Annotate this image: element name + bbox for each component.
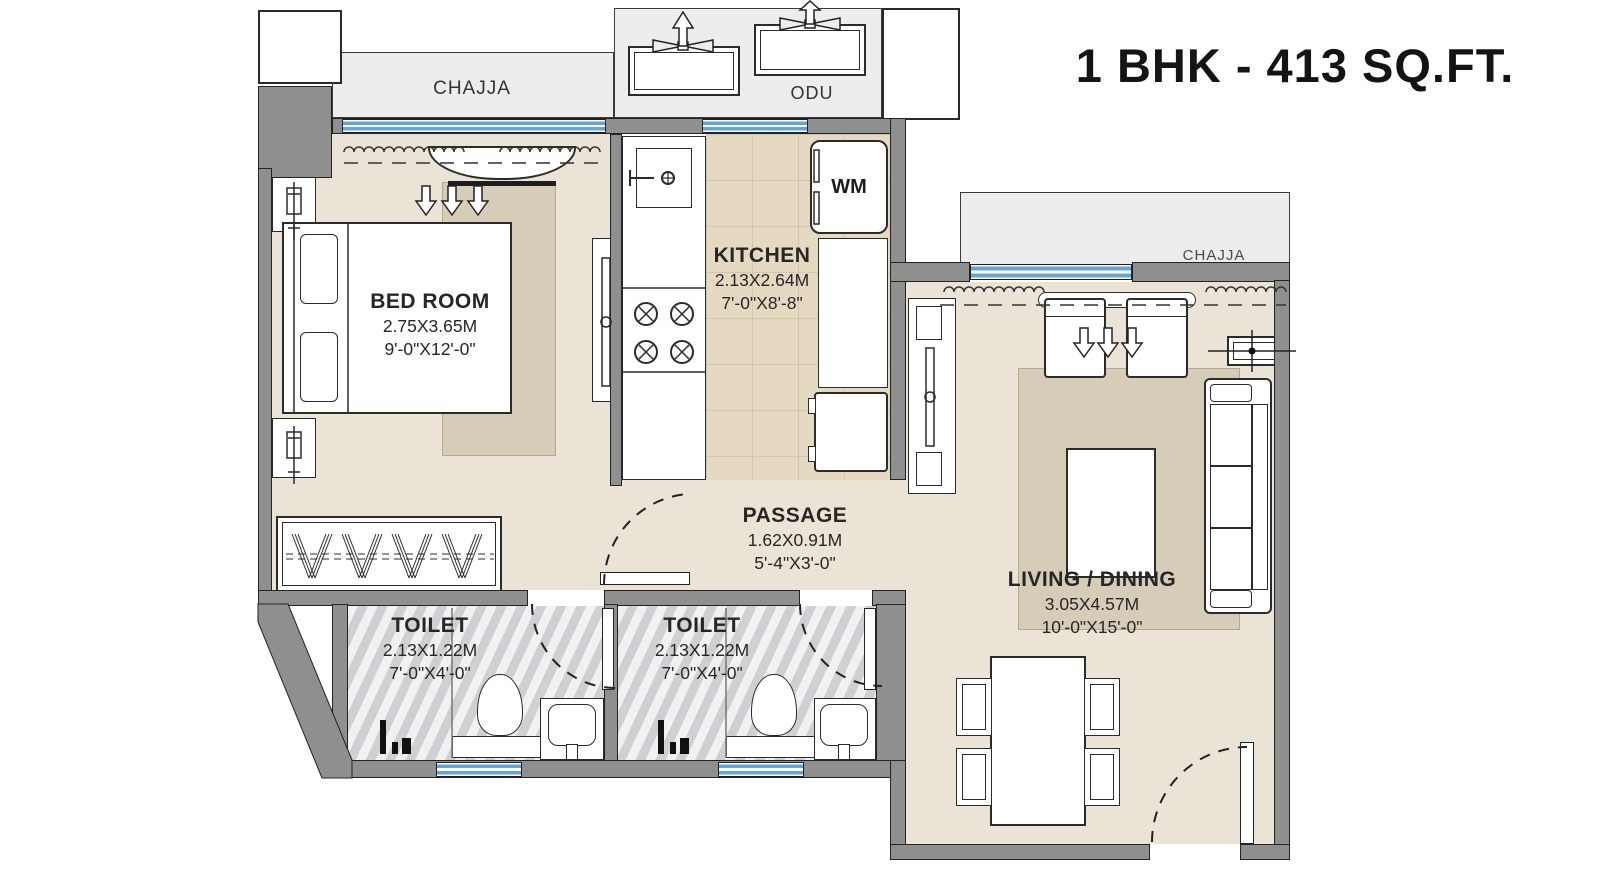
duct-shaft-topleft — [258, 10, 342, 84]
passage-floor-opening — [890, 480, 906, 592]
pillow-2 — [300, 332, 338, 402]
washing-machine-label: WM — [831, 176, 867, 199]
wall-living-bottom-1 — [890, 844, 1150, 860]
toilet2-wc-bowl — [751, 674, 797, 736]
sofa-seat-3 — [1210, 528, 1252, 590]
floor-plan-canvas: WM — [0, 0, 1600, 889]
toilet2-washbasin — [820, 704, 868, 746]
dining-chair-3 — [1084, 678, 1120, 736]
toilet2-label: TOILET 2.13X1.22M 7'-0"X4'-0" — [655, 612, 749, 685]
bedroom-door-leaf — [600, 572, 690, 585]
sliding-door-block-top — [916, 306, 942, 340]
accent-chair-2 — [1126, 298, 1188, 378]
dining-chair-1 — [956, 678, 992, 736]
dining-chair-4 — [1084, 748, 1120, 806]
bedside-table-bottom — [272, 418, 316, 478]
kitchen-label: KITCHEN 2.13X2.64M 7'-0"X8'-8" — [714, 242, 811, 315]
dining-chair-2 — [956, 748, 992, 806]
refrigerator — [814, 392, 888, 472]
coffee-table — [1066, 448, 1156, 578]
toilet1-basin-tap — [566, 744, 578, 760]
wall-toilet2-right — [876, 604, 906, 778]
accent-chair-1 — [1044, 298, 1106, 378]
wall-living-right — [1274, 280, 1290, 860]
sofa-armrest-top — [1210, 384, 1252, 402]
odu-label: ODU — [791, 83, 834, 104]
toilet1-label: TOILET 2.13X1.22M 7'-0"X4'-0" — [383, 612, 477, 685]
wall-living-bottom-2 — [1240, 844, 1290, 860]
toilet2-window — [718, 762, 804, 777]
wall-left — [258, 168, 272, 604]
wall-corner-block — [258, 86, 332, 178]
wall-living-window-right — [1132, 262, 1290, 282]
toilet2-basin-tap — [838, 744, 850, 760]
ac-outdoor-unit-2 — [754, 24, 866, 76]
wall-kitchen-right — [890, 118, 906, 480]
wall-toilet-bottom — [332, 760, 906, 778]
passage-label: PASSAGE 1.62X0.91M 5'-4"X3'-0" — [743, 502, 848, 575]
living-dining-label: LIVING / DINING 3.05X4.57M 10'-0"X15'-0" — [1008, 566, 1177, 639]
dining-table — [990, 656, 1086, 826]
toilet1-window — [436, 762, 522, 777]
sliding-door-block-bottom — [916, 452, 942, 486]
entrance-door-leaf — [1240, 742, 1254, 844]
toilet1-wc-bowl — [477, 674, 523, 736]
kitchen-window — [702, 119, 808, 133]
wall-living-window-left — [890, 262, 970, 282]
living-ac-indoor-unit — [1227, 336, 1281, 366]
wardrobe — [276, 516, 502, 592]
bedroom-window — [342, 119, 606, 133]
toilet2-cistern — [726, 736, 828, 758]
living-window — [970, 264, 1132, 280]
wall-bedroom-kitchen — [610, 134, 622, 486]
pillow-1 — [300, 234, 338, 304]
bedroom-ac-grill — [448, 181, 556, 186]
fridge-hinge-top — [808, 398, 816, 414]
washing-machine: WM — [810, 140, 888, 234]
toilet1-door-leaf — [602, 608, 614, 690]
plan-title: 1 BHK - 413 SQ.FT. — [1055, 38, 1535, 93]
bedroom-label: BED ROOM 2.75X3.65M 9'-0"X12'-0" — [370, 288, 490, 361]
sofa-armrest-bottom — [1210, 590, 1252, 608]
toilet1-cistern — [452, 736, 554, 758]
kitchen-sink — [636, 148, 692, 208]
wall-bottom-bedroom-1 — [258, 590, 528, 606]
toilet2-door-leaf — [864, 608, 876, 690]
sofa-back-cushions — [1252, 404, 1268, 590]
wall-bottom-bedroom-2 — [604, 590, 800, 606]
wall-toilet1-left — [332, 604, 348, 778]
fridge-hinge-bottom — [808, 446, 816, 462]
toilet1-washbasin — [548, 704, 596, 746]
ac-outdoor-unit-1 — [628, 46, 740, 96]
sofa-seat-2 — [1210, 466, 1252, 528]
chajja-living-label: CHAJJA — [1183, 247, 1246, 264]
chajja-top-label: CHAJJA — [433, 78, 511, 100]
kitchen-counter-right — [818, 238, 888, 388]
duct-shaft-topright — [882, 8, 960, 120]
sofa-seat-1 — [1210, 404, 1252, 466]
